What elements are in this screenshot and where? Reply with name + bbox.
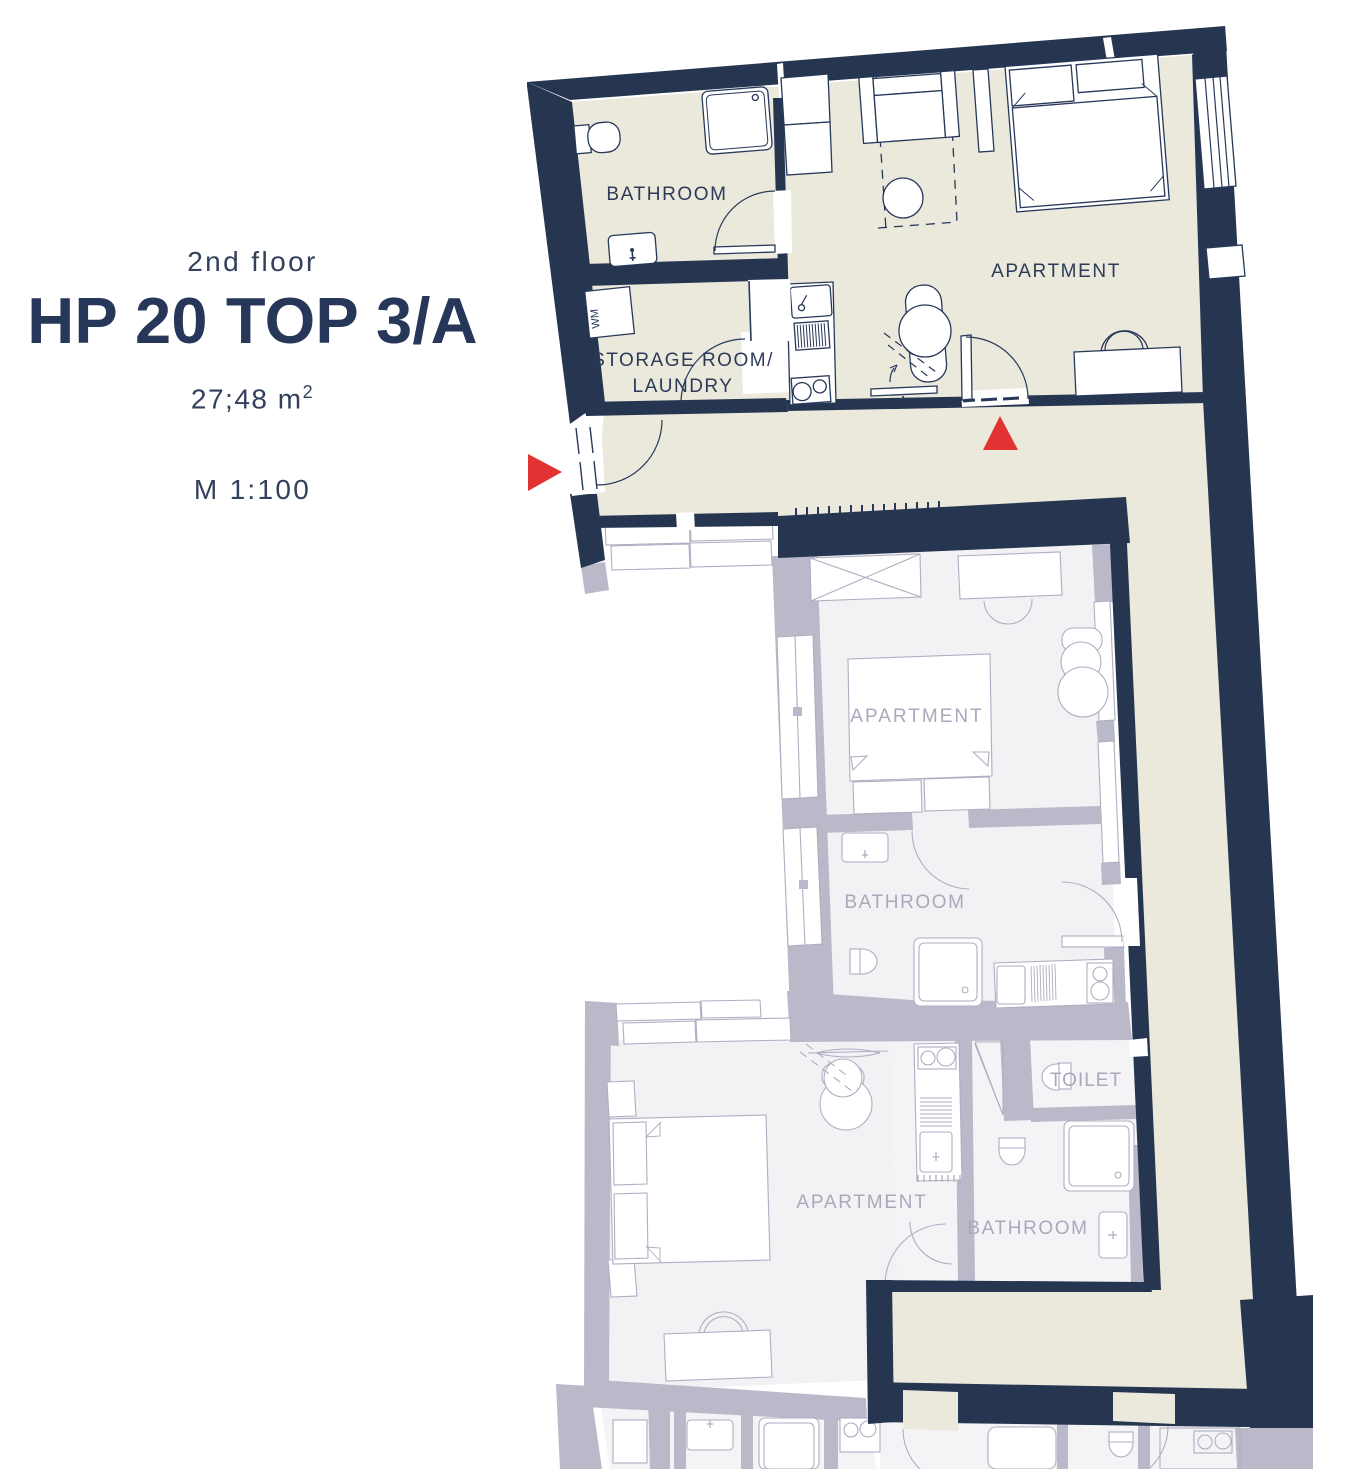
svg-text:APARTMENT: APARTMENT: [991, 261, 1121, 282]
svg-text:APARTMENT: APARTMENT: [796, 1192, 927, 1213]
svg-text:LAUNDRY: LAUNDRY: [633, 376, 734, 397]
svg-text:BATHROOM: BATHROOM: [844, 892, 965, 913]
svg-text:WM: WM: [589, 308, 603, 329]
svg-text:APARTMENT: APARTMENT: [850, 706, 983, 727]
svg-text:BATHROOM: BATHROOM: [967, 1218, 1088, 1239]
svg-text:BATHROOM: BATHROOM: [606, 184, 727, 205]
svg-text:TOILET: TOILET: [1050, 1070, 1122, 1091]
svg-text:STORAGE ROOM/: STORAGE ROOM/: [592, 350, 774, 371]
